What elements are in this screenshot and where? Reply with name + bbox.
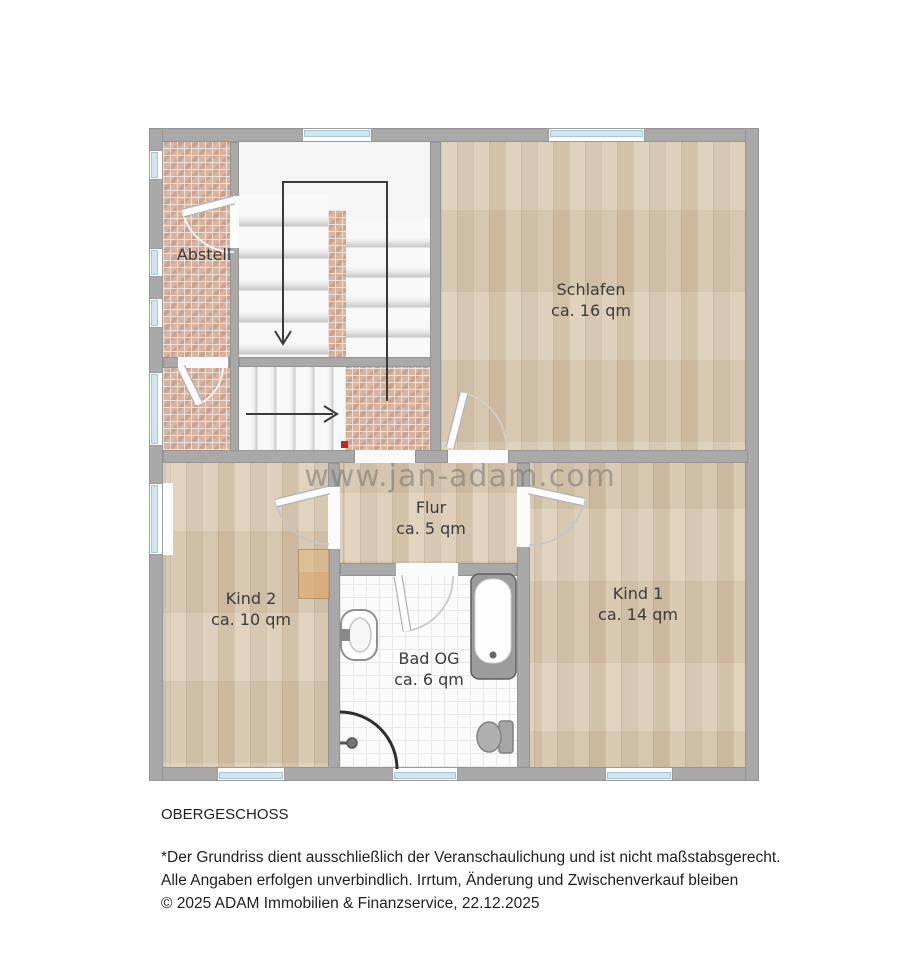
- watermark: www.jan-adam.com: [290, 459, 630, 494]
- room-name: Schlafen: [521, 279, 661, 300]
- window-left-1: [149, 150, 163, 180]
- floor-title: OBERGESCHOSS: [161, 806, 289, 823]
- label-kind2: Kind 2 ca. 10 qm: [186, 588, 316, 630]
- window-bottom-bad: [392, 767, 458, 781]
- door-opening-bad: [396, 563, 458, 576]
- disclaimer-line-3: © 2025 ADAM Immobilien & Finanzservice, …: [161, 892, 801, 915]
- wall-stair-divider: [239, 357, 432, 367]
- door-opening-kind1: [517, 487, 530, 547]
- label-kind1: Kind 1 ca. 14 qm: [573, 583, 703, 625]
- door-opening-vestibule: [178, 357, 228, 368]
- wall-stair-schlafen: [430, 142, 441, 463]
- floor-stair-landing: [345, 367, 430, 453]
- room-name: Flur: [366, 497, 496, 518]
- room-area: ca. 6 qm: [364, 669, 494, 690]
- stair-flight-bottom: [239, 367, 345, 453]
- room-name: Kind 2: [186, 588, 316, 609]
- window-left-3: [149, 298, 163, 328]
- disclaimer-line-2: Alle Angaben erfolgen unverbindlich. Irr…: [161, 869, 801, 892]
- wall-outer-left: [149, 128, 163, 781]
- window-bottom-kind1: [605, 767, 673, 781]
- window-top-schlafen: [548, 128, 645, 142]
- room-name: Abstell: [144, 244, 264, 265]
- door-opening-abstell: [230, 196, 239, 248]
- window-top-stair: [302, 128, 372, 142]
- room-area: ca. 5 qm: [366, 518, 496, 539]
- window-sill-kind2: [163, 483, 173, 555]
- room-name: Bad OG: [364, 648, 494, 669]
- room-area: ca. 16 qm: [521, 300, 661, 321]
- stair-newel-wall: [328, 210, 346, 358]
- label-schlafen: Schlafen ca. 16 qm: [521, 279, 661, 321]
- stair-flight-right: [346, 218, 430, 358]
- stair-flight-left: [239, 195, 328, 358]
- window-bottom-kind2: [217, 767, 285, 781]
- room-area: ca. 10 qm: [186, 609, 316, 630]
- disclaimer-line-1: *Der Grundriss dient ausschließlich der …: [161, 846, 801, 869]
- red-marker: [341, 441, 348, 448]
- disclaimer: *Der Grundriss dient ausschließlich der …: [161, 846, 801, 915]
- window-left-4: [149, 372, 163, 446]
- room-name: Kind 1: [573, 583, 703, 604]
- label-flur: Flur ca. 5 qm: [366, 497, 496, 539]
- room-area: ca. 14 qm: [573, 604, 703, 625]
- label-abstell: Abstell: [144, 244, 264, 265]
- wall-abstell-right: [230, 142, 239, 453]
- door-opening-kind2: [328, 487, 340, 549]
- floor-plan-page: Abstell Schlafen ca. 16 qm Flur ca. 5 qm…: [0, 0, 920, 958]
- floor-abstell-tiles: [163, 142, 239, 457]
- window-left-kind2: [149, 483, 163, 555]
- label-bad: Bad OG ca. 6 qm: [364, 648, 494, 690]
- wall-outer-top: [149, 128, 759, 142]
